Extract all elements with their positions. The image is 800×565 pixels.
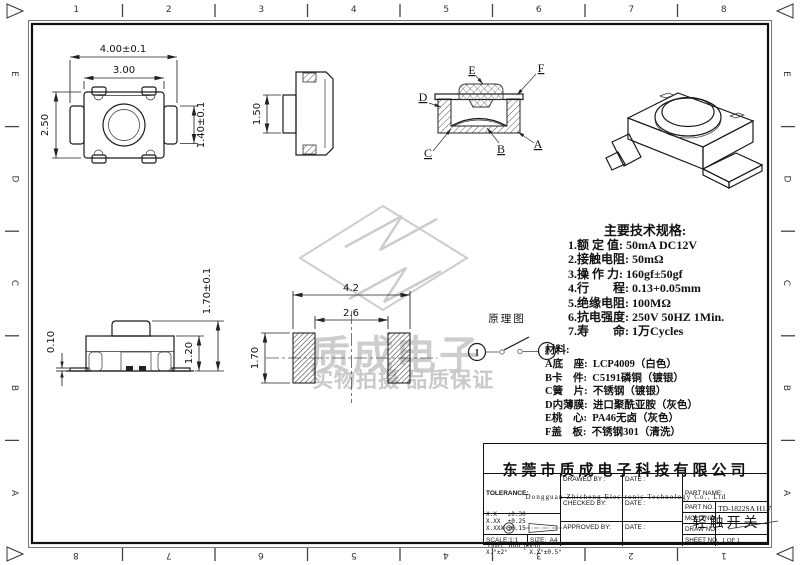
dim-front-total: 1.70±0.1	[202, 268, 213, 315]
spec-line: 4.行 程: 0.13+0.05mm	[568, 281, 724, 295]
zone-number: 8	[30, 545, 123, 565]
title-block: 东莞市质成电子科技有限公司 Dongguan Zhicheng Electron…	[483, 443, 769, 545]
dim-top-height: 2.50	[40, 114, 51, 136]
front-view: 0.10 1.20 1.70±0.1	[46, 268, 224, 386]
border-bottom-zones: 8 7 6 5 4 3 2 1	[30, 545, 770, 565]
section-view: E F D C B A	[419, 61, 545, 160]
zone-number: 2	[585, 545, 678, 565]
dim-top-outer: 4.00±0.1	[100, 44, 147, 55]
dim-front-body: 1.20	[184, 342, 195, 364]
watermark-logo	[300, 206, 467, 310]
date-cell: DATE :	[623, 522, 683, 546]
size-cell: SIZE: A4	[528, 535, 561, 546]
zone-number: 1	[30, 0, 123, 20]
materials-list: A底 座: LCP4009（白色）B卡 件: C5191磷铜（镀银）C簧 片: …	[545, 358, 698, 439]
materials-title: 材料:	[545, 342, 570, 357]
material-line: B卡 件: C5191磷铜（镀银）	[545, 372, 698, 386]
zone-number: 7	[123, 545, 216, 565]
draw-no-value	[716, 524, 768, 535]
mold-no-label: MOLD NO.	[683, 513, 716, 524]
section-label-c: C	[424, 146, 432, 160]
tolerance-title: TOLERANCE:	[486, 490, 560, 497]
border-right-zones: E D C B A	[772, 22, 800, 545]
drawed-by-cell: DRAWED BY :	[561, 474, 623, 498]
spec-line: 5.绝缘电阻: 100MΩ	[568, 296, 724, 310]
dim-top-tab: 1.40±0.1	[196, 102, 207, 149]
material-line: D内薄膜: 进口聚酰亚胺（灰色）	[545, 399, 698, 413]
border-left-zones: E D C B A	[0, 22, 28, 545]
zone-number: 7	[585, 0, 678, 20]
section-label-a: A	[534, 137, 543, 151]
spec-line: 6.抗电强度: 250V 50HZ 1Min.	[568, 310, 724, 324]
zone-number: 6	[493, 0, 586, 20]
date-cell: DATE :	[623, 474, 683, 498]
section-label-e: E	[468, 63, 475, 77]
zone-number: 3	[215, 0, 308, 20]
section-label-b: B	[497, 142, 505, 156]
part-no-value: TD-1822SA H1.7	[716, 502, 768, 513]
watermark-text-2: 实物拍摄 品质保证	[312, 364, 494, 394]
date-cell: DATE :	[623, 498, 683, 522]
sheet-no-value: 1 OF 1	[716, 535, 768, 546]
dim-footprint-inner: 2.6	[343, 308, 359, 319]
projection-unit-cell: UNIT: mm [inch]	[484, 514, 561, 535]
material-line: E桃 心: PA46无卤（灰色）	[545, 412, 698, 426]
zone-number: 2	[123, 0, 216, 20]
zone-letter: D	[772, 127, 800, 232]
zone-letter: A	[0, 440, 28, 545]
spec-line: 1.额 定 值: 50mA DC12V	[568, 238, 724, 252]
zone-number: 5	[308, 545, 401, 565]
zone-letter: C	[772, 231, 800, 336]
isometric-view	[606, 93, 762, 188]
company-cell: 东莞市质成电子科技有限公司 Dongguan Zhicheng Electron…	[484, 444, 768, 474]
draw-no-label: DRAW NO:	[683, 524, 716, 535]
dim-front-standoff: 0.10	[46, 331, 57, 353]
dim-footprint-outer: 4.2	[343, 283, 359, 294]
spec-title: 主要技术规格:	[555, 220, 735, 239]
third-angle-projection-icon	[499, 522, 567, 534]
zone-letter: C	[0, 231, 28, 336]
spec-line: 3.操 作 力: 160gf±50gf	[568, 267, 724, 281]
zone-letter: D	[0, 127, 28, 232]
zone-number: 8	[678, 0, 771, 20]
zone-letter: E	[772, 22, 800, 127]
zone-number: 4	[308, 0, 401, 20]
spec-list: 1.额 定 值: 50mA DC12V2.接触电阻: 50mΩ3.操 作 力: …	[568, 238, 724, 339]
material-line: C簧 片: 不锈钢（镀银）	[545, 385, 698, 399]
part-no-label: PART NO.	[683, 502, 716, 513]
scale-cell: SCALE:1:1	[484, 535, 528, 546]
dim-footprint-pad: 1.70	[250, 347, 261, 369]
tolerance-cell: TOLERANCE: X.X ±0.30X.XX ±0.25X.XXX ±0.1…	[484, 474, 561, 514]
schematic-title: 原理图	[488, 313, 526, 325]
part-name-label: PART NAME:	[685, 490, 768, 497]
mold-no-value	[716, 513, 768, 524]
zone-letter: E	[0, 22, 28, 127]
zone-number: 5	[400, 0, 493, 20]
border-top-zones: 1 2 3 4 5 6 7 8	[30, 0, 770, 20]
zone-letter: B	[0, 336, 28, 441]
side-view: 1.50	[252, 72, 333, 155]
zone-letter: B	[772, 336, 800, 441]
drawing-sheet: 质成电子 实物拍摄 品质保证 1 2 3 4 5 6 7 8 8 7 6 5 4…	[0, 0, 800, 565]
approved-by-cell: APPROVED BY:	[561, 522, 623, 546]
zone-number: 6	[215, 545, 308, 565]
checked-by-cell: CHECKED BY:	[561, 498, 623, 522]
section-label-d: D	[419, 90, 428, 104]
spec-line: 7.寿 命: 1万Cycles	[568, 324, 724, 338]
section-label-f: F	[538, 61, 545, 75]
material-line: F盖 板: 不锈钢301（清洗）	[545, 426, 698, 440]
zone-number: 1	[678, 545, 771, 565]
dim-top-inner: 3.00	[113, 65, 135, 76]
sheet-no-label: SHEET NO.	[683, 535, 716, 546]
zone-number: 4	[400, 545, 493, 565]
part-name-cell: PART NAME: 轻触开关	[683, 474, 768, 502]
dim-side-button: 1.50	[252, 103, 263, 125]
top-view: 4.00±0.1 3.00 2.50 1.40±0.1	[40, 44, 207, 163]
spec-line: 2.接触电阻: 50mΩ	[568, 252, 724, 266]
material-line: A底 座: LCP4009（白色）	[545, 358, 698, 372]
